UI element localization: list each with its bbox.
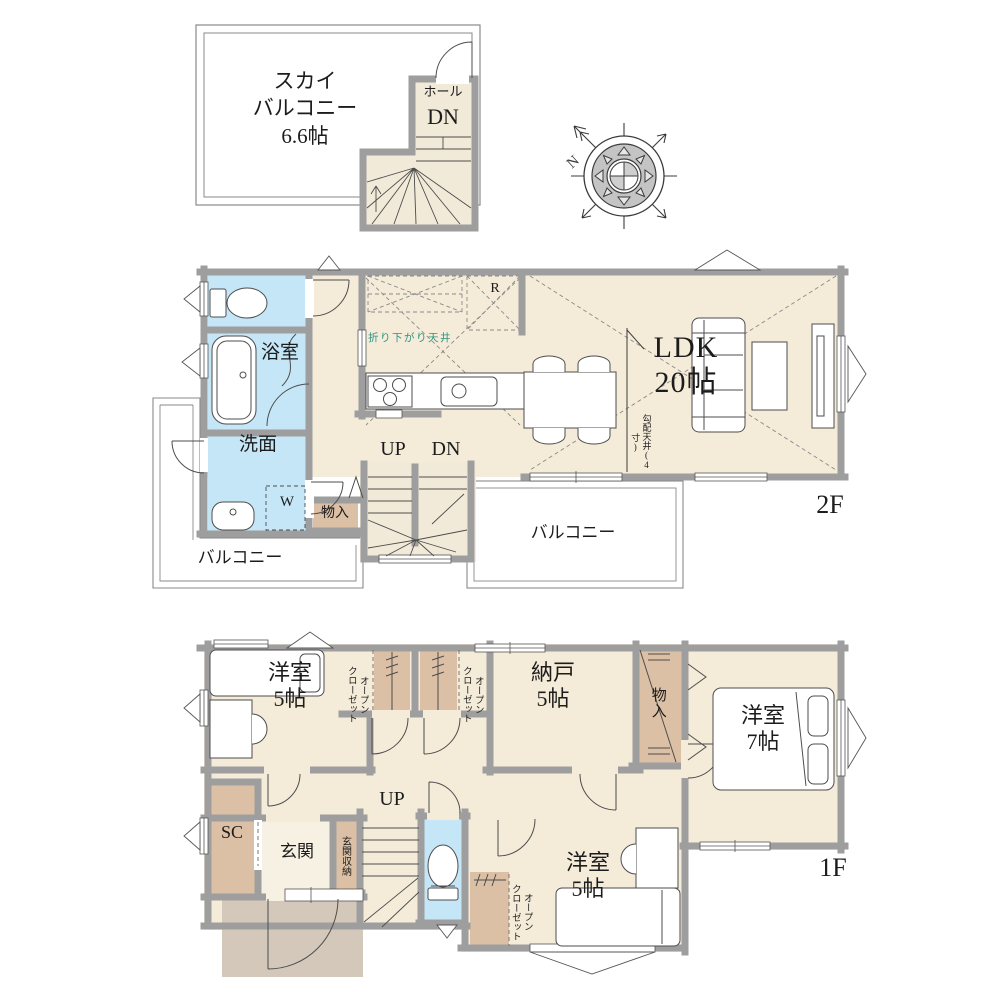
shoe-closet-label: SC <box>207 822 257 843</box>
lowered-ceiling-label: 折り下がり天井 <box>368 333 458 345</box>
compass-rose: N <box>564 123 677 229</box>
open-closet-3 <box>470 872 509 948</box>
balcony-left-label: バルコニー <box>180 548 300 568</box>
room5-bottom-label: 洋室 5帖 <box>538 850 638 902</box>
open-closet-3-label: オープン クローゼット <box>508 875 532 949</box>
open-closet-2-label: オープン クローゼット <box>459 652 483 737</box>
washer-label: W <box>272 494 302 512</box>
entrance-storage-label: 玄関収納 <box>338 825 351 887</box>
north-arrow <box>574 126 596 148</box>
dn-3f-label: DN <box>412 104 474 130</box>
room5-top-label: 洋室 5帖 <box>240 660 340 712</box>
sloped-ceiling-label: 勾配天井(4寸) <box>629 406 652 478</box>
floor-2f-label: 2F <box>800 490 860 521</box>
room7-label: 洋室 7帖 <box>713 703 813 755</box>
fridge-label: R <box>485 281 505 298</box>
washroom-label: 洗面 <box>218 434 298 456</box>
storage-2f-label: 物入 <box>311 506 359 523</box>
open-closet-1-label: オープン クローゼット <box>344 652 368 737</box>
storage-1f-label: 物入 <box>648 672 667 734</box>
up-1f-label: UP <box>366 788 418 812</box>
bath-label: 浴室 <box>240 342 320 364</box>
sky-balcony-label: スカイ バルコニー 6.6帖 <box>220 68 390 150</box>
floor-2f <box>153 250 866 588</box>
nando-label: 納戸 5帖 <box>503 660 603 712</box>
dn-2f-label: DN <box>420 438 472 462</box>
floor-1f-label: 1F <box>803 853 863 884</box>
ldk-label: LDK 20帖 <box>600 330 772 401</box>
hall-3f-label: ホール <box>412 84 474 99</box>
balcony-center-label: バルコニー <box>513 523 633 543</box>
entrance-label: 玄関 <box>263 842 331 862</box>
up-2f-label: UP <box>368 438 418 462</box>
floor-plan-page: N <box>0 0 1000 1000</box>
compass-north-label: N <box>564 153 583 172</box>
